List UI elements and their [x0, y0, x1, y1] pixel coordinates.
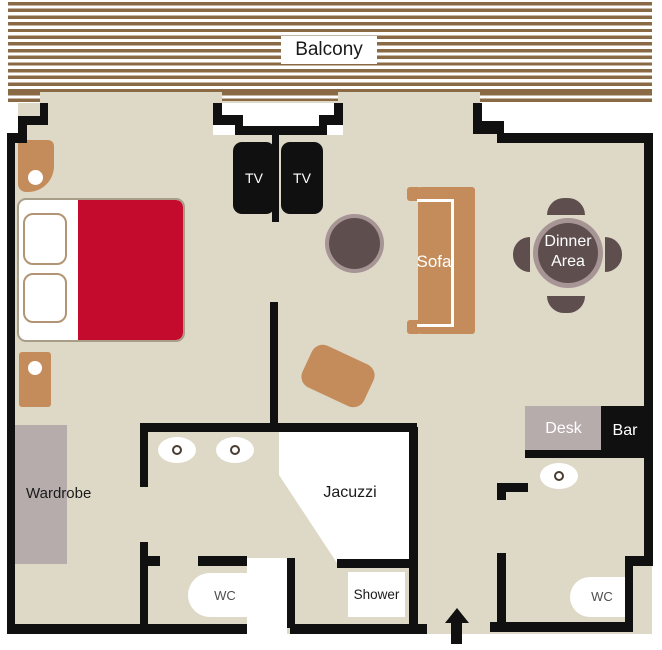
wall-bathroom-right: [409, 427, 418, 628]
tv-right-label: TV: [293, 170, 311, 186]
tv-right: TV: [281, 142, 323, 214]
balcony-deck-stub-door: [222, 92, 338, 101]
bed-pillow-1: [23, 213, 67, 265]
shower-label: Shower: [348, 587, 405, 602]
wall-top-right: [497, 133, 653, 143]
wall-shower-top: [337, 559, 417, 568]
bed: [17, 198, 185, 342]
wall-bathroom-left-lower: [140, 542, 148, 628]
balcony-deck-stub-left: [8, 92, 40, 103]
guest-sink: [540, 463, 578, 489]
sink-drain-icon: [554, 471, 564, 481]
wall-bottom-mid: [290, 624, 427, 634]
floor-plan: Balcony TV TV Sofa: [0, 0, 662, 650]
wall-wc-right: [287, 558, 295, 628]
sink-drain-icon: [230, 445, 240, 455]
wall-wc-top: [198, 556, 247, 566]
coffee-table-top: [329, 218, 380, 269]
bar-label: Bar: [601, 422, 649, 440]
sofa-label: Sofa: [402, 252, 466, 272]
wall-room-divider: [270, 302, 278, 431]
dinner-area-label: Dinner Area: [533, 230, 603, 274]
nightstand-knob: [28, 170, 43, 185]
wall-right: [644, 133, 653, 561]
entrance-arrow-shaft: [451, 622, 462, 644]
wc-guest-label: WC: [574, 589, 630, 604]
nightstand-bottom: [19, 352, 51, 407]
wall-balconydoor-threshold: [235, 126, 327, 135]
bed-cover: [78, 200, 183, 340]
bathroom-sink-1: [158, 437, 196, 463]
tv-left: TV: [233, 142, 275, 214]
balcony-label: Balcony: [281, 36, 377, 64]
coffee-table: [325, 214, 384, 273]
wc-door-opening: [247, 558, 287, 634]
wall-balconydoor-r1: [334, 103, 343, 124]
wall-left: [7, 133, 15, 634]
jacuzzi-label: Jacuzzi: [295, 484, 405, 501]
wc-bathroom-label: WC: [197, 588, 253, 603]
tv-divider: [272, 133, 279, 222]
wall-elbow-v: [497, 483, 506, 500]
wall-bottom-right: [490, 622, 633, 632]
wall-desk-bottom: [525, 450, 653, 458]
dinner-area-label-line1: Dinner: [544, 232, 591, 252]
entrance-arrow-icon: [445, 608, 469, 623]
wall-bathroom-left-upper: [140, 423, 148, 487]
sink-drain-icon: [172, 445, 182, 455]
balcony-deck-stub-right: [480, 92, 652, 103]
nightstand-knob: [28, 361, 42, 375]
dinner-area-label-line2: Area: [551, 252, 585, 272]
tv-left-label: TV: [245, 170, 263, 186]
bed-pillow-2: [23, 273, 67, 323]
wall-tick: [148, 556, 160, 566]
wall-guestwc-left: [497, 553, 506, 628]
wardrobe-label: Wardrobe: [26, 485, 91, 501]
wall-bottom-left: [7, 624, 247, 634]
wall-bathroom-top: [140, 423, 417, 432]
bathroom-sink-2: [216, 437, 254, 463]
desk-label: Desk: [525, 420, 602, 438]
wall-jamb-right-2: [473, 121, 504, 134]
